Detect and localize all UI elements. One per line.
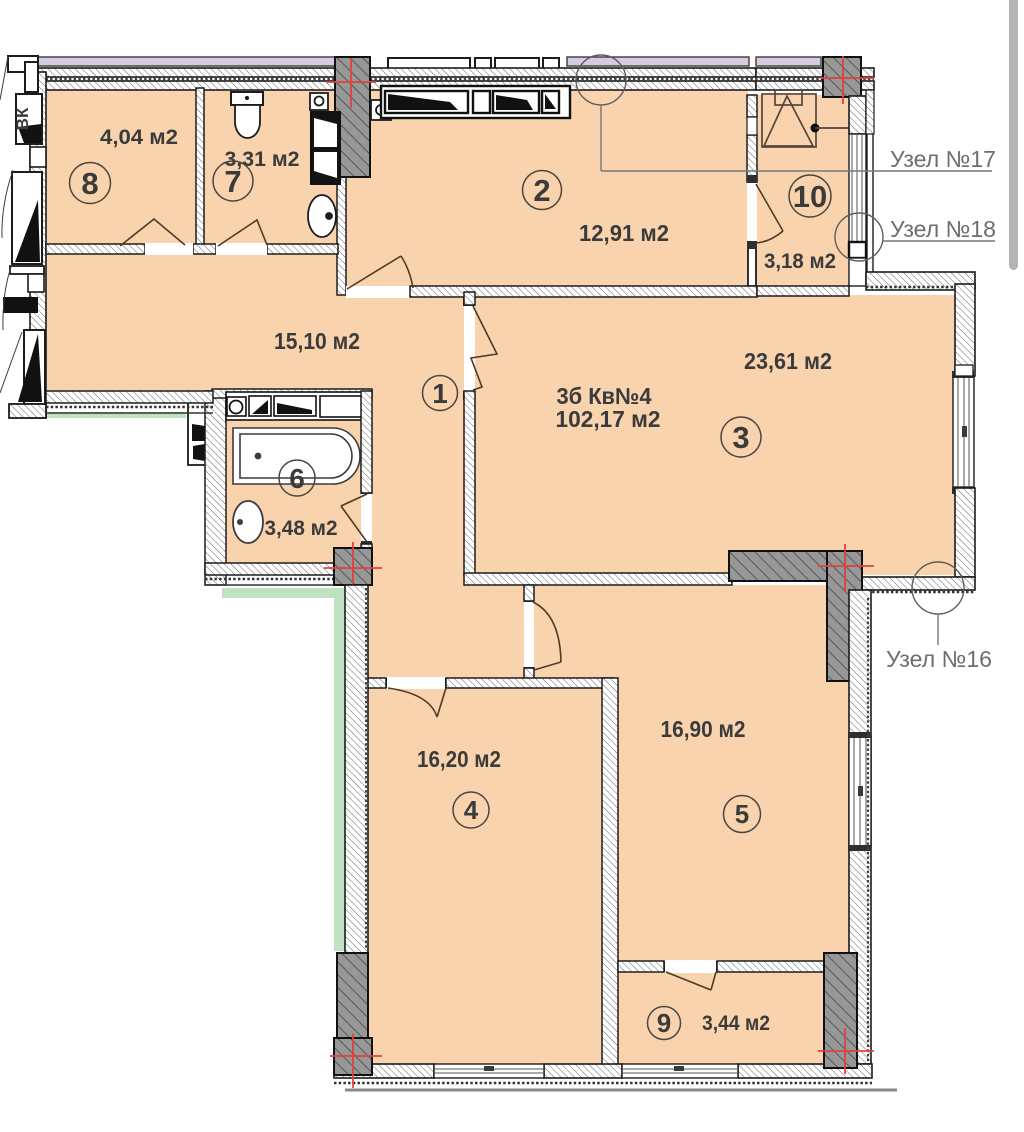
svg-text:Узел №16: Узел №16 <box>886 646 992 672</box>
svg-text:ВК: ВК <box>13 107 32 130</box>
svg-text:3,18 м2: 3,18 м2 <box>764 250 836 273</box>
svg-text:8: 8 <box>81 166 98 201</box>
svg-text:3,48 м2: 3,48 м2 <box>265 517 338 540</box>
svg-text:102,17 м2: 102,17 м2 <box>556 406 661 432</box>
svg-text:1: 1 <box>432 378 448 409</box>
svg-text:3,44 м2: 3,44 м2 <box>702 1012 770 1035</box>
svg-text:16,20 м2: 16,20 м2 <box>417 746 501 772</box>
svg-text:23,61 м2: 23,61 м2 <box>744 348 832 374</box>
svg-text:16,90 м2: 16,90 м2 <box>661 716 746 742</box>
svg-text:3: 3 <box>732 420 749 455</box>
svg-text:2: 2 <box>533 173 550 208</box>
svg-text:6: 6 <box>289 463 305 494</box>
svg-text:15,10 м2: 15,10 м2 <box>274 328 360 354</box>
svg-text:10: 10 <box>793 179 827 214</box>
svg-text:5: 5 <box>735 799 749 829</box>
svg-text:7: 7 <box>224 164 241 199</box>
svg-text:4,04 м2: 4,04 м2 <box>100 126 178 149</box>
svg-text:4: 4 <box>464 795 479 825</box>
svg-text:9: 9 <box>657 1008 671 1038</box>
svg-text:12,91 м2: 12,91 м2 <box>579 220 669 246</box>
svg-text:Узел №18: Узел №18 <box>890 216 996 242</box>
svg-text:Узел №17: Узел №17 <box>890 146 996 172</box>
